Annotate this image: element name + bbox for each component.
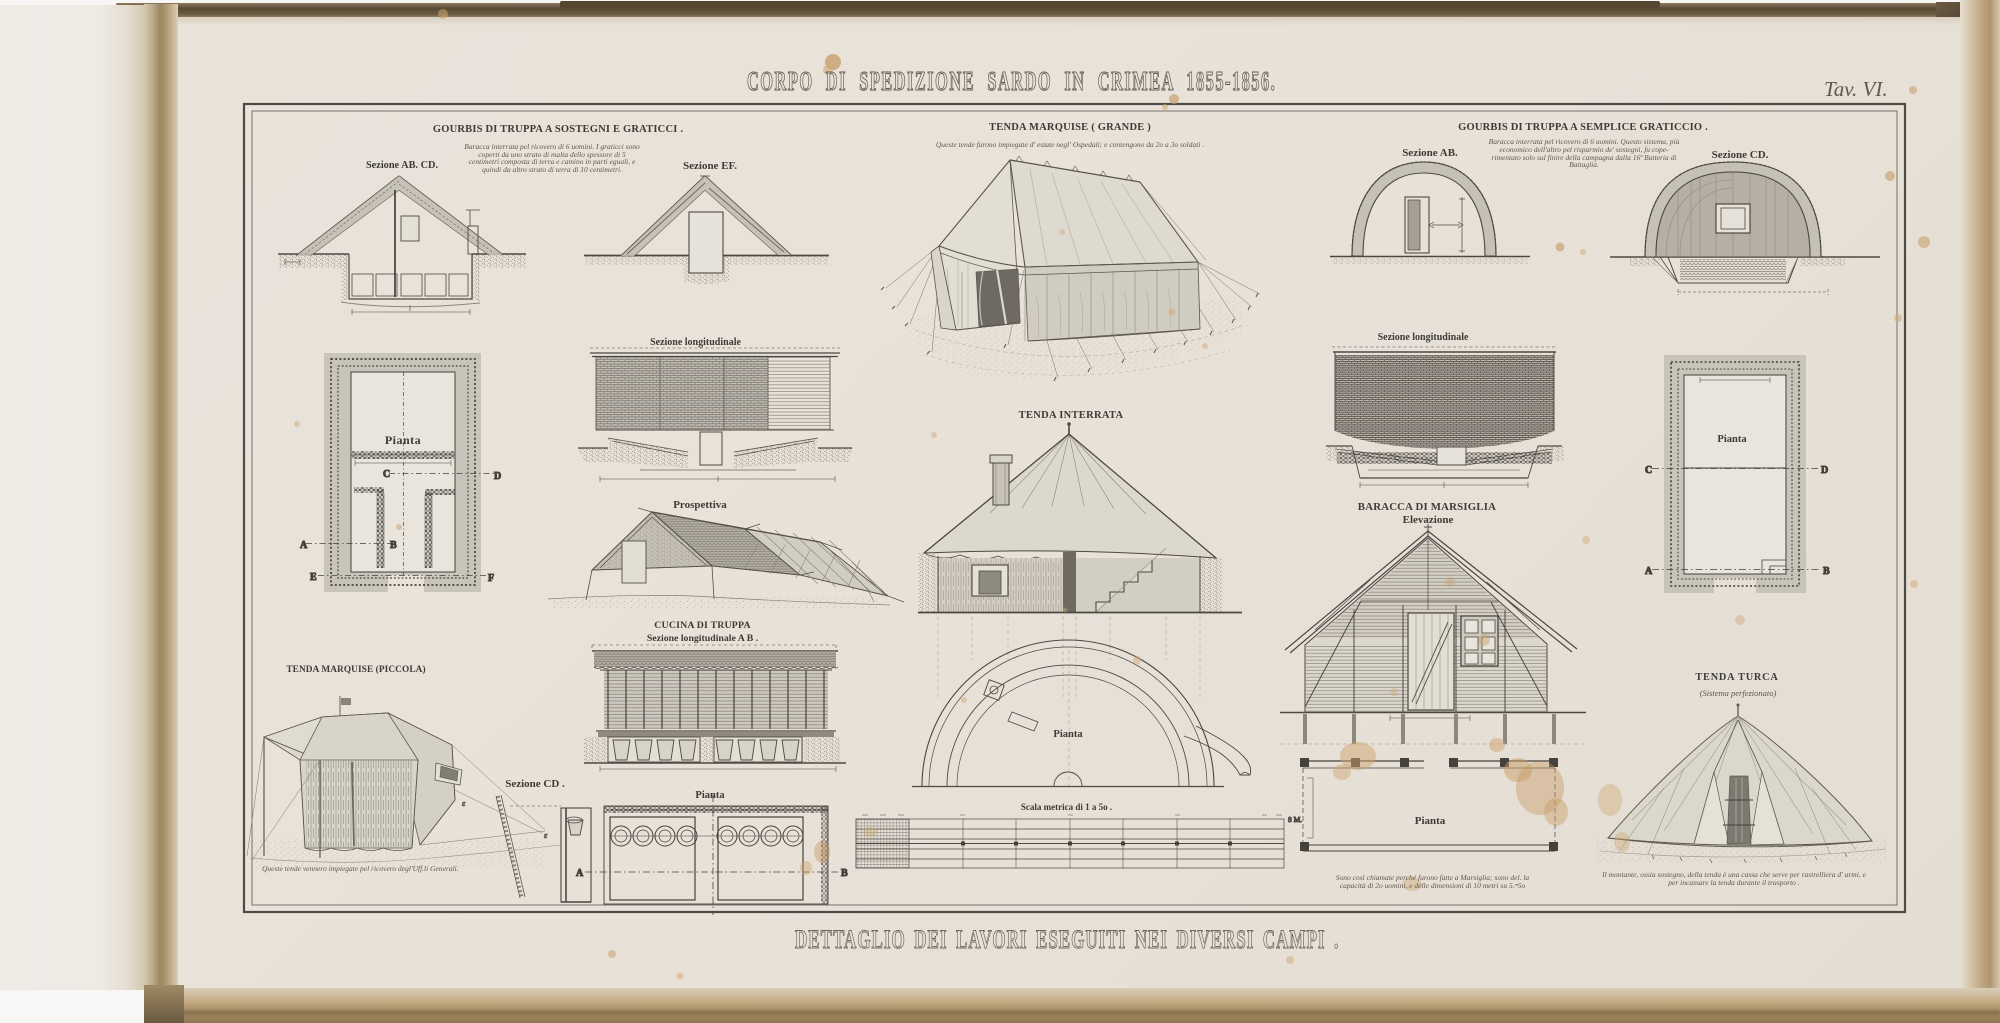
svg-text:A: A xyxy=(576,868,584,879)
svg-text:E: E xyxy=(310,572,317,583)
svg-text:A: A xyxy=(1645,566,1653,577)
svg-text:ε: ε xyxy=(462,799,466,808)
svg-text:C: C xyxy=(383,469,390,480)
svg-text:ε: ε xyxy=(544,831,548,840)
svg-text:F: F xyxy=(488,573,494,584)
svg-text:D: D xyxy=(1821,465,1828,476)
svg-text:B: B xyxy=(841,868,848,879)
svg-text:B: B xyxy=(1823,566,1830,577)
svg-text:8 M.: 8 M. xyxy=(1288,815,1302,824)
svg-text:B: B xyxy=(390,540,397,551)
svg-text:C: C xyxy=(1645,465,1652,476)
svg-text:D: D xyxy=(494,471,501,482)
svg-text:A: A xyxy=(300,540,308,551)
